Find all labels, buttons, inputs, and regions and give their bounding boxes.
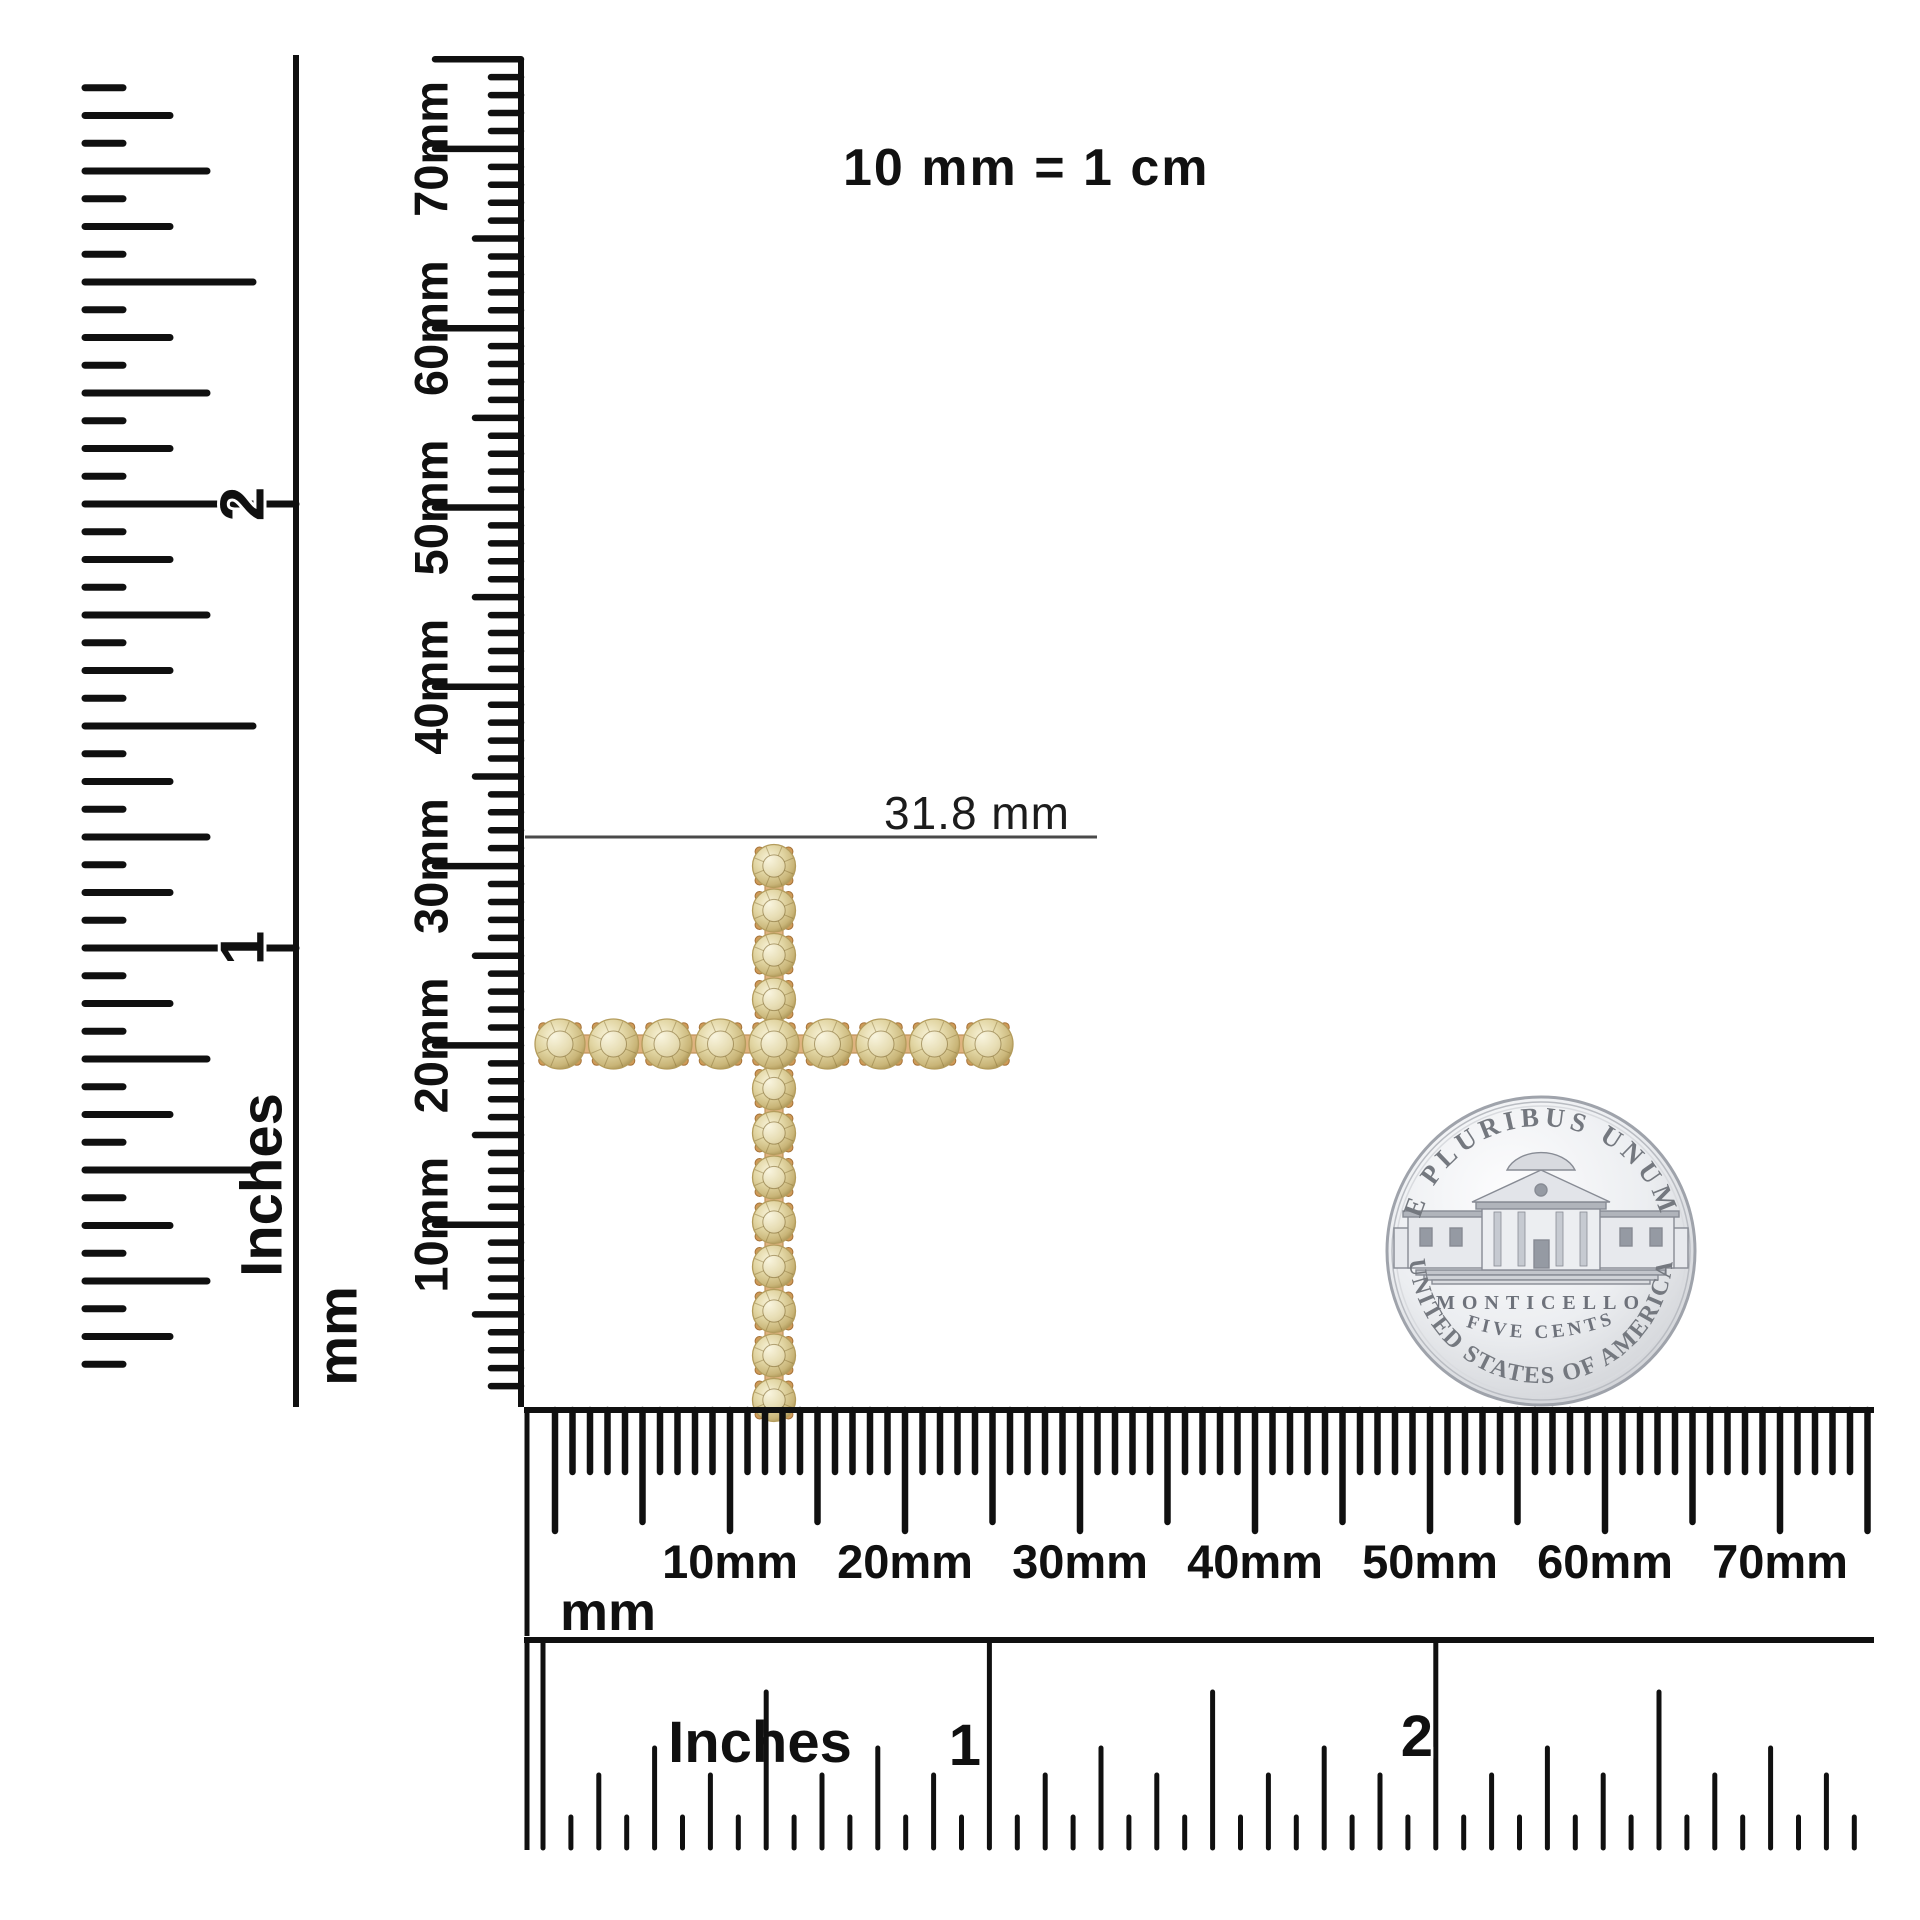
- scale-equivalence-note: 10 mm = 1 cm: [843, 138, 1210, 198]
- diamond-stone: [753, 889, 796, 932]
- stone-table: [763, 1344, 785, 1366]
- diamond-stone: [803, 1019, 853, 1069]
- bottom-mm-mark-10mm: 10mm: [662, 1535, 798, 1588]
- bottom-mm-mark-50mm: 50mm: [1362, 1535, 1498, 1588]
- vertical-mm-ruler: 10mm20mm30mm40mm50mm60mm70mmmm: [306, 58, 522, 1407]
- nickel-coin: E PLURIBUS UNUM UNITED STATES OF AMERICA…: [1387, 1097, 1695, 1405]
- diamond-stone: [753, 1290, 796, 1333]
- bottom-mm-mark-40mm: 40mm: [1187, 1535, 1323, 1588]
- diamond-stone: [696, 1019, 746, 1069]
- vertical-mm-mark-20mm: 20mm: [405, 977, 458, 1113]
- diamond-stone: [753, 1379, 796, 1422]
- bottom-inches-unit-label: Inches: [668, 1710, 852, 1775]
- stone-table: [763, 944, 785, 966]
- diamond-stone: [749, 1019, 799, 1069]
- stone-table: [763, 1255, 785, 1277]
- diamond-stone: [753, 1245, 796, 1288]
- bottom-mm-mark-60mm: 60mm: [1537, 1535, 1673, 1588]
- vertical-mm-mark-30mm: 30mm: [405, 798, 458, 934]
- stone-table: [763, 988, 785, 1010]
- stone-table: [922, 1031, 948, 1057]
- measurement-scene: 12Inches 10mm20mm30mm40mm50mm60mm70mmmm: [0, 0, 1920, 1920]
- stone-table: [761, 1031, 787, 1057]
- diamond-stone: [753, 1112, 796, 1155]
- diamond-stone: [753, 1334, 796, 1377]
- bottom-inches-mark-1: 1: [949, 1713, 981, 1778]
- bottom-mm-mark-30mm: 30mm: [1012, 1535, 1148, 1588]
- vertical-mm-mark-10mm: 10mm: [405, 1157, 458, 1293]
- stone-table: [975, 1031, 1001, 1057]
- diamond-stone: [753, 1067, 796, 1110]
- bottom-mm-unit-label: mm: [560, 1582, 656, 1642]
- left-inches-unit-label: Inches: [230, 1093, 295, 1277]
- stone-table: [601, 1031, 627, 1057]
- diamond-stone: [535, 1019, 585, 1069]
- diamond-stone: [753, 934, 796, 977]
- left-inches-ruler: 12Inches: [85, 55, 296, 1407]
- vertical-mm-mark-50mm: 50mm: [405, 440, 458, 576]
- bottom-mm-ruler: 10mm20mm30mm40mm50mm60mm70mmmm: [524, 1410, 1874, 1642]
- coin-building-label: MONTICELLO: [1436, 1292, 1646, 1314]
- stone-table: [763, 1122, 785, 1144]
- diamond-stone: [589, 1019, 639, 1069]
- diamond-stone: [856, 1019, 906, 1069]
- bottom-inches-mark-2: 2: [1401, 1704, 1433, 1769]
- bottom-mm-mark-20mm: 20mm: [837, 1535, 973, 1588]
- stone-table: [547, 1031, 573, 1057]
- diamond-stone: [910, 1019, 960, 1069]
- left-inches-mark-2: 2: [209, 487, 278, 521]
- stone-table: [763, 855, 785, 877]
- stone-table: [815, 1031, 841, 1057]
- diamond-stone: [753, 1156, 796, 1199]
- vertical-mm-mark-40mm: 40mm: [405, 619, 458, 755]
- stone-table: [654, 1031, 680, 1057]
- stone-table: [708, 1031, 734, 1057]
- diamond-stone: [642, 1019, 692, 1069]
- stone-table: [868, 1031, 894, 1057]
- bottom-inches-ruler: 12Inches: [524, 1640, 1874, 1850]
- stone-table: [763, 1077, 785, 1099]
- vertical-mm-unit-label: mm: [306, 1286, 369, 1386]
- bottom-mm-mark-70mm: 70mm: [1712, 1535, 1848, 1588]
- vertical-mm-mark-70mm: 70mm: [405, 81, 458, 217]
- measurement-value-label: 31.8 mm: [884, 786, 1070, 840]
- stone-table: [763, 1300, 785, 1322]
- diamond-stone: [753, 978, 796, 1021]
- left-inches-mark-1: 1: [209, 931, 278, 965]
- jewelry-measurement-image: 12Inches 10mm20mm30mm40mm50mm60mm70mmmm: [0, 0, 1920, 1920]
- stone-table: [763, 1166, 785, 1188]
- stone-table: [763, 1211, 785, 1233]
- diamond-cross-pendant: [535, 845, 1013, 1422]
- vertical-mm-mark-60mm: 60mm: [405, 260, 458, 396]
- diamond-stone: [963, 1019, 1013, 1069]
- stone-table: [763, 899, 785, 921]
- diamond-stone: [753, 1201, 796, 1244]
- diamond-stone: [753, 845, 796, 888]
